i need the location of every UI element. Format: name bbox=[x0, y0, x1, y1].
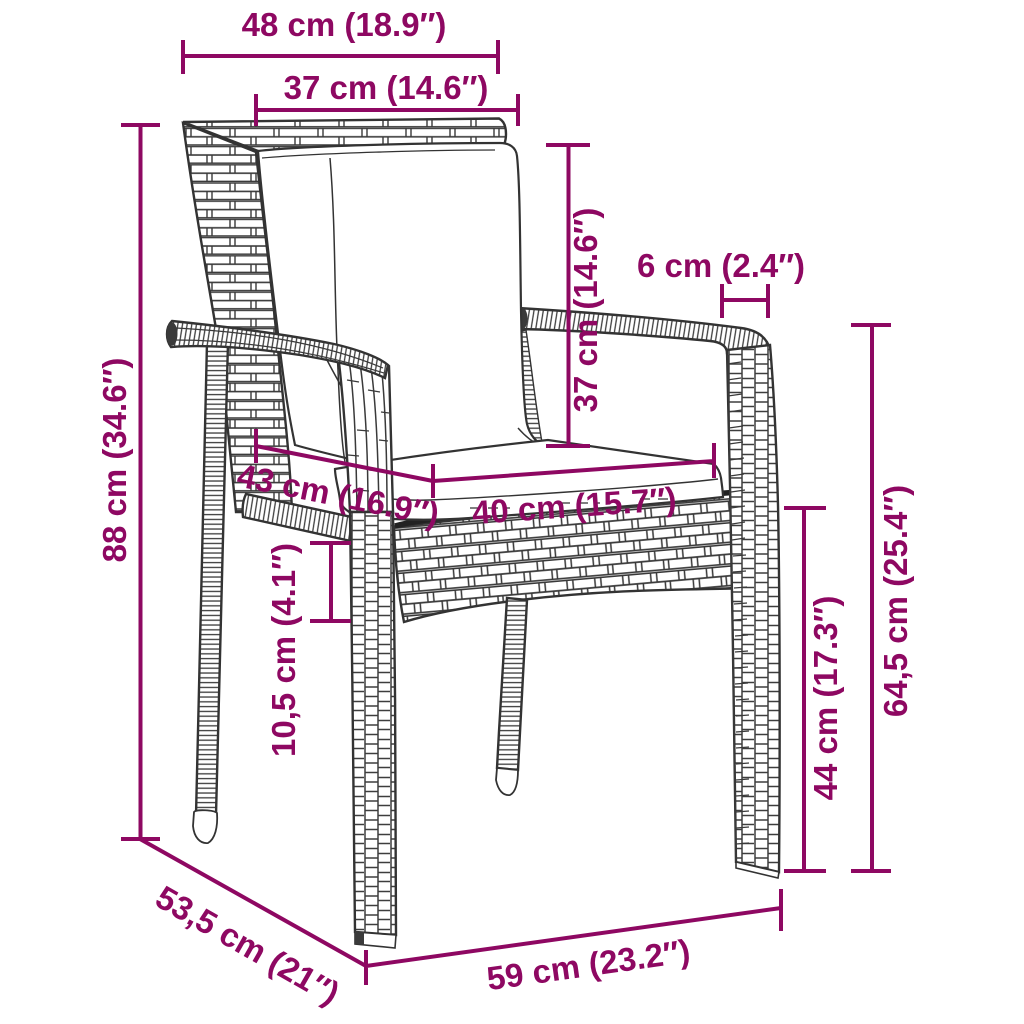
svg-text:6 cm (2.4″): 6 cm (2.4″) bbox=[637, 247, 805, 284]
svg-text:37 cm (14.6″): 37 cm (14.6″) bbox=[284, 69, 489, 106]
svg-text:37 cm (14.6″): 37 cm (14.6″) bbox=[567, 208, 604, 413]
svg-text:88 cm (34.6″): 88 cm (34.6″) bbox=[96, 358, 133, 563]
svg-text:64,5 cm (25.4″): 64,5 cm (25.4″) bbox=[877, 485, 914, 717]
svg-text:10,5 cm (4.1″): 10,5 cm (4.1″) bbox=[265, 543, 302, 757]
svg-text:48 cm (18.9″): 48 cm (18.9″) bbox=[242, 6, 447, 43]
svg-text:44 cm (17.3″): 44 cm (17.3″) bbox=[807, 596, 844, 801]
